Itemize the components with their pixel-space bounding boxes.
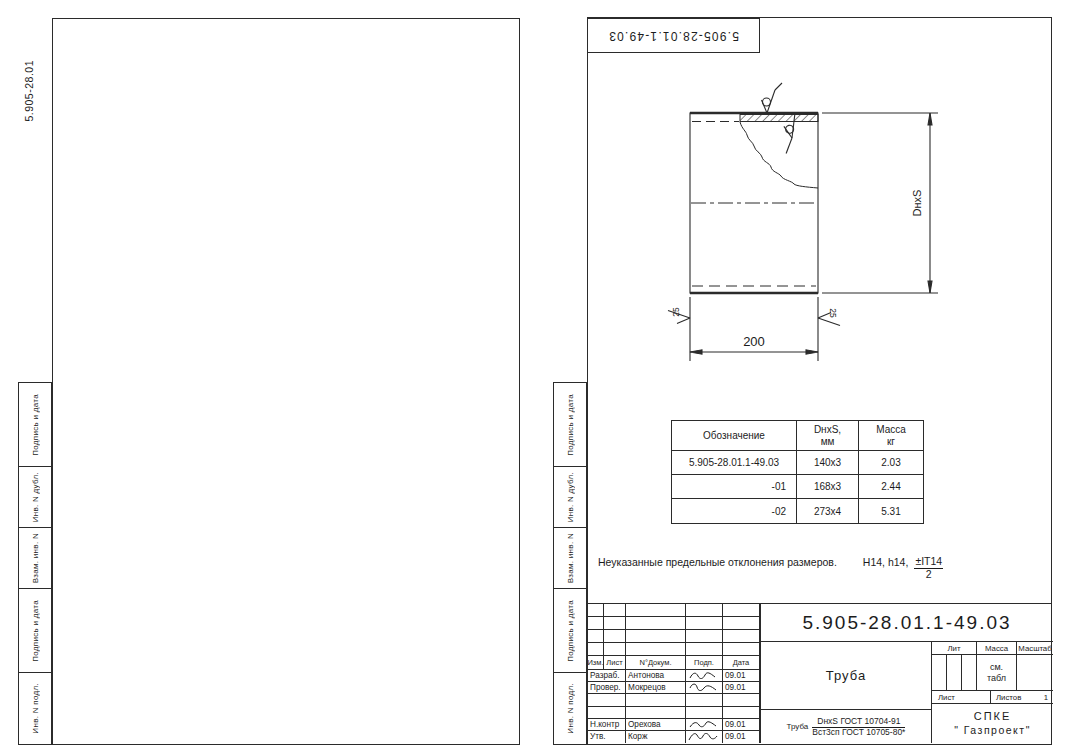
col-podp: Подп.: [686, 656, 723, 670]
name-cell: [626, 694, 686, 706]
empty-cell: [686, 643, 723, 656]
empty-cell: [604, 643, 626, 656]
signature-cell: [686, 719, 723, 731]
empty-cell: [626, 604, 686, 617]
organization-box: СПКЕ " Газпроект": [931, 704, 1053, 743]
material-prefix: Труба: [787, 722, 809, 731]
tolerance-note: Неуказанные предельные отклонения размер…: [598, 556, 943, 580]
material-gost-top: DнхS ГОСТ 10704-91: [812, 717, 905, 728]
spec-header-dnxs: DнхS, мм: [797, 421, 859, 451]
arrowhead: [928, 281, 932, 293]
inverted-designation-stamp: 5.905-28.01.1-49.03: [587, 18, 760, 53]
signature-cell: [686, 670, 723, 682]
empty-cell: [626, 630, 686, 643]
role-cell: Н.контр: [588, 719, 626, 731]
col-list: Лист: [604, 656, 626, 670]
material-fraction: DнхS ГОСТ 10704-91 Вст3сп ГОСТ 10705-80*: [812, 717, 905, 737]
lit-header: Лит: [931, 642, 976, 655]
empty-cell: [626, 643, 686, 656]
break-line: [740, 122, 818, 188]
empty-cell: [588, 630, 604, 643]
empty-cell: [626, 617, 686, 630]
roughness-25-right-label: 25: [828, 308, 838, 318]
weld-hatch-band: [740, 115, 818, 122]
signature-cell: [686, 707, 723, 719]
part-name-box: Труба: [760, 642, 931, 710]
roughness-symbol-top: [762, 83, 783, 113]
left-sheet-corner-code: 5.905-28.01: [20, 52, 38, 130]
listov-value: 1: [1044, 693, 1048, 702]
right-sheet-margin-stamps: Подпись и дата Инв. N дубл. Взам. инв. N…: [553, 382, 587, 745]
massa-value-line: см.: [990, 662, 1003, 673]
name-cell: Корж: [626, 731, 686, 743]
col-data: Дата: [723, 656, 760, 670]
empty-cell: [723, 643, 760, 656]
margin-box-podpis-i-data: Подпись и дата: [553, 382, 587, 466]
margin-label: Подпись и дата: [31, 394, 40, 456]
name-cell: Мокрецов: [626, 682, 686, 694]
roughness-25-left-label: 25: [671, 307, 681, 317]
role-cell: [588, 707, 626, 719]
organization-line1: СПКЕ: [974, 710, 1012, 724]
listov-cell: Листов 1: [990, 691, 1053, 704]
designation-box: 5.905-28.01.1-49.03: [760, 604, 1053, 642]
margin-label: Взам. инв. N: [566, 533, 575, 583]
masshtab-value: [1016, 655, 1053, 691]
margin-box-podpis-i-data-2: Подпись и дата: [18, 588, 52, 672]
margin-label: Взам. инв. N: [31, 533, 40, 583]
margin-label: Подпись и дата: [566, 394, 575, 456]
margin-box-inv-dubl: Инв. N дубл.: [553, 466, 587, 527]
spec-header-text: DнхS,: [814, 424, 841, 436]
empty-cell: [723, 604, 760, 617]
arrowhead: [928, 113, 932, 125]
date-cell: [723, 707, 760, 719]
empty-cell: [686, 630, 723, 643]
name-cell: Антонова: [626, 670, 686, 682]
list-cell: Лист: [931, 691, 990, 704]
empty-cell: [686, 604, 723, 617]
signature-cell: [686, 731, 723, 743]
material-gost-bottom: Вст3сп ГОСТ 10705-80*: [812, 728, 905, 737]
stamp-code-text: 5.905-28.01.1-49.03: [608, 29, 739, 43]
date-cell: 09.01: [723, 670, 760, 682]
margin-box-vzam-inv: Взам. инв. N: [553, 527, 587, 588]
margin-label: Подпись и дата: [566, 600, 575, 662]
empty-cell: [604, 604, 626, 617]
empty-cell: [686, 617, 723, 630]
tolerance-classes: Н14, h14,: [863, 556, 909, 568]
empty-cell: [604, 617, 626, 630]
date-cell: 09.01: [723, 682, 760, 694]
spec-header-designation: Обозначение: [672, 421, 797, 451]
signature-korzh: [688, 731, 718, 742]
margin-box-vzam-inv: Взам. инв. N: [18, 527, 52, 588]
signature-cell: [686, 682, 723, 694]
spec-header-text: Масса: [876, 424, 906, 436]
margin-label: Подпись и дата: [31, 600, 40, 662]
margin-label: Инв. N дубл.: [31, 472, 40, 522]
signature-antonova: [688, 670, 718, 681]
date-cell: 09.01: [723, 719, 760, 731]
lit-cell-2: [946, 655, 961, 691]
spec-header-text: мм: [821, 436, 835, 448]
signature-rows: Разраб. Антонова 09.01 Провер. Мокрецов …: [588, 670, 760, 743]
margin-label: Инв. N подл.: [31, 683, 40, 734]
spec-header-mass: Масса кг: [859, 421, 923, 451]
col-dokum: N°Докум.: [626, 656, 686, 670]
margin-box-inv-podl: Инв. N подл.: [553, 672, 587, 745]
role-cell: Утв.: [588, 731, 626, 743]
spec-header-text: Обозначение: [703, 430, 765, 442]
name-cell: [626, 707, 686, 719]
listov-label: Листов: [996, 693, 1021, 702]
massa-value: см. табл: [976, 655, 1016, 691]
date-cell: [723, 694, 760, 706]
role-cell: Провер.: [588, 682, 626, 694]
arrowhead: [690, 350, 702, 354]
role-cell: Разраб.: [588, 670, 626, 682]
name-cell: Орехова: [626, 719, 686, 731]
left-sheet-margin-stamps: Подпись и дата Инв. N дубл. Взам. инв. N…: [18, 382, 52, 745]
spec-cell: 168х3: [797, 475, 859, 499]
margin-box-inv-podl: Инв. N подл.: [18, 672, 52, 745]
lit-cell-3: [961, 655, 976, 691]
signature-cell: [686, 694, 723, 706]
empty-cell: [588, 617, 604, 630]
spec-cell: 5.905-28.01.1-49.03: [672, 451, 797, 475]
empty-cell: [723, 630, 760, 643]
date-cell: 09.01: [723, 731, 760, 743]
dim-200-label: 200: [743, 334, 765, 349]
margin-label: Инв. N дубл.: [566, 472, 575, 522]
pipe-drawing: 200 DнхS 25 25: [640, 80, 960, 380]
spec-cell: 273х4: [797, 499, 859, 523]
signature-mokretsov: [688, 682, 718, 693]
margin-box-podpis-i-data: Подпись и дата: [18, 382, 52, 466]
spec-cell: -02: [672, 499, 797, 523]
spec-cell: 5.31: [859, 499, 923, 523]
role-cell: [588, 694, 626, 706]
spec-cell: -01: [672, 475, 797, 499]
arrowhead: [806, 350, 818, 354]
corner-code-text: 5.905-28.01: [23, 60, 35, 122]
massa-value-line: табл: [987, 673, 1006, 684]
masshtab-header: Масштаб: [1016, 642, 1053, 655]
left-sheet-frame: [52, 18, 520, 745]
massa-header: Масса: [976, 642, 1016, 655]
margin-label: Инв. N подл.: [566, 683, 575, 734]
empty-cell: [604, 630, 626, 643]
tolerance-fraction: ±IT14 2: [914, 556, 943, 580]
scanned-drawing-sheets: 5.905-28.01 Подпись и дата Инв. N дубл. …: [0, 0, 1066, 755]
tolerance-fraction-den: 2: [914, 569, 943, 580]
dim-dnxs-label: DнхS: [911, 190, 923, 217]
margin-box-podpis-i-data-2: Подпись и дата: [553, 588, 587, 672]
empty-cell: [588, 604, 604, 617]
signature-orekhova: [688, 719, 718, 730]
lit-cell-1: [931, 655, 946, 691]
spec-table: Обозначение DнхS, мм Масса кг 5.905-28.0…: [671, 420, 924, 524]
spec-header-text: кг: [887, 436, 895, 448]
spec-cell: 2.03: [859, 451, 923, 475]
spec-cell: 2.44: [859, 475, 923, 499]
empty-cell: [588, 643, 604, 656]
revision-header-row: Изм. Лист N°Докум. Подп. Дата: [588, 656, 760, 670]
tolerance-note-text: Неуказанные предельные отклонения размер…: [598, 556, 837, 568]
margin-box-inv-dubl: Инв. N дубл.: [18, 466, 52, 527]
empty-cell: [723, 617, 760, 630]
revision-table: [588, 604, 760, 656]
title-block: Изм. Лист N°Докум. Подп. Дата Разраб. Ан…: [587, 603, 1052, 745]
col-izm: Изм.: [588, 656, 604, 670]
organization-line2: " Газпроект": [954, 724, 1031, 737]
material-box: Труба DнхS ГОСТ 10704-91 Вст3сп ГОСТ 107…: [760, 710, 931, 743]
spec-cell: 140х3: [797, 451, 859, 475]
